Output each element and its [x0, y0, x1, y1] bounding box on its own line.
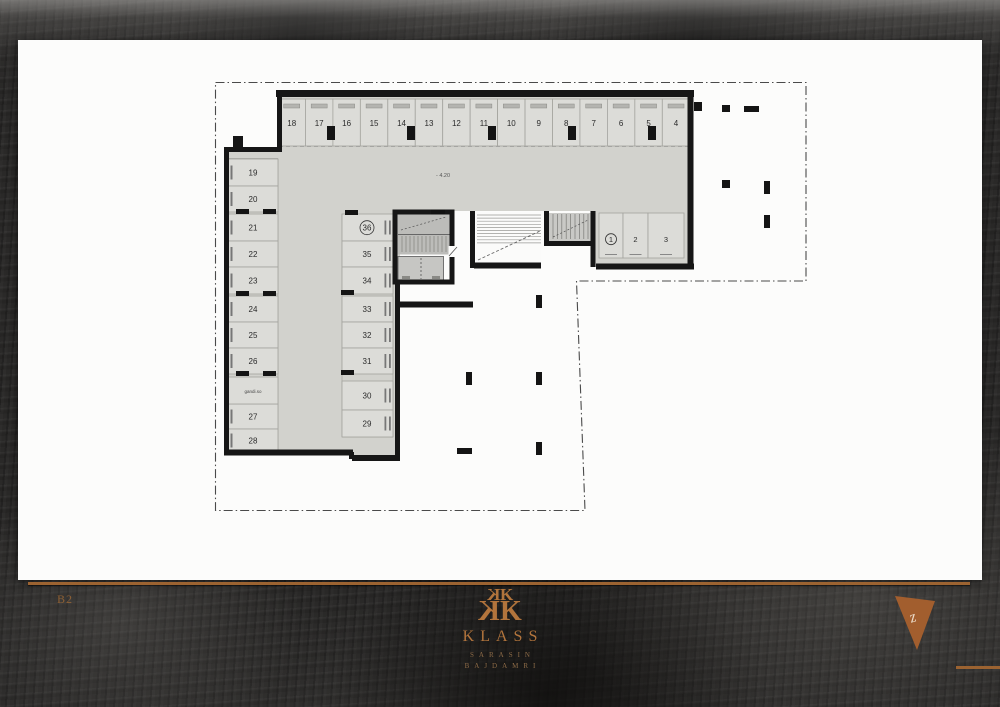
parking-space-number: 10: [507, 119, 516, 128]
wheel-stop: [311, 104, 327, 108]
stall-tick: [389, 274, 391, 288]
wheel-stop: [366, 104, 382, 108]
parking-space-number: 29: [363, 420, 372, 429]
stall-tick: [389, 302, 391, 316]
stair-core: [398, 215, 451, 281]
parking-space-number: 32: [363, 331, 372, 340]
parking-space-number: 3: [664, 235, 668, 244]
parking-space-number: 7: [591, 119, 596, 128]
parking-space-number: 9: [537, 119, 542, 128]
level-badge: B2: [57, 592, 73, 607]
wheel-stop: [531, 104, 547, 108]
strip-label: gandi.so: [244, 389, 262, 394]
stall-tick: [385, 354, 387, 368]
floorplan-card: 1817161514131211109876541920212223242526…: [18, 40, 982, 580]
stall-tick: [385, 389, 387, 403]
parking-space-number: 23: [249, 277, 258, 286]
parking-space-number: 28: [249, 437, 258, 446]
stall-tick: [231, 302, 233, 316]
parking-space-number: 2: [633, 235, 637, 244]
wheel-stop: [641, 104, 657, 108]
north-arrow: z: [888, 592, 942, 656]
brand-name: KLASS: [400, 629, 600, 645]
parking-space-number: 33: [363, 305, 372, 314]
parking-space-number: 19: [249, 169, 258, 178]
parking-space-number: 18: [287, 119, 296, 128]
parking-space-number: 35: [363, 250, 372, 259]
elevation-label: - 4.20: [436, 173, 450, 179]
wheel-stop: [558, 104, 574, 108]
wheel-stop: [503, 104, 519, 108]
wheel-stop: [421, 104, 437, 108]
parking-space-number: 13: [425, 119, 434, 128]
stall-tick: [231, 434, 233, 448]
parking-space-number: 25: [249, 331, 258, 340]
stall-tick: [385, 328, 387, 342]
parking-space-number: 31: [363, 357, 372, 366]
wheel-stop: [284, 104, 300, 108]
parking-space-number: 17: [315, 119, 324, 128]
stall-tick: [231, 247, 233, 261]
stall-tick: [385, 274, 387, 288]
copper-edge-line: [956, 666, 1000, 669]
wheel-stop: [476, 104, 492, 108]
parking-space-number: 12: [452, 119, 461, 128]
stall-tick: [231, 328, 233, 342]
building-floor-areas: [224, 96, 690, 455]
stall-tick: [385, 302, 387, 316]
wall-pilaster: [233, 136, 243, 148]
wheel-stop: [339, 104, 355, 108]
wheel-stop: [394, 104, 410, 108]
wheel-stop: [613, 104, 629, 108]
wheel-stop: [668, 104, 684, 108]
parking-space-number: 11: [480, 119, 489, 128]
stall-tick: [231, 410, 233, 424]
stall-tick: [231, 166, 233, 180]
parking-space-number: 15: [370, 119, 379, 128]
parking-space-number: 24: [249, 305, 258, 314]
parking-space-number: 20: [249, 195, 258, 204]
parking-space-number: 27: [249, 413, 258, 422]
floorplan-drawing: 1817161514131211109876541920212223242526…: [18, 40, 982, 580]
parking-space-number: 21: [249, 224, 258, 233]
stair-secondary: [549, 213, 591, 242]
stall-tick: [389, 417, 391, 431]
parking-space-number: 4: [674, 119, 679, 128]
stall-tick: [231, 274, 233, 288]
stall-tick: [385, 221, 387, 235]
wheel-stop: [586, 104, 602, 108]
parking-space-number: 36: [363, 224, 372, 233]
parking-space-number: 26: [249, 357, 258, 366]
stall-tick: [385, 247, 387, 261]
wheel-stop: [448, 104, 464, 108]
parking-space-number: 6: [619, 119, 624, 128]
stall-tick: [231, 221, 233, 235]
stall-tick: [385, 417, 387, 431]
brand-logo: KK KK KLASS SARASIN BAJDAMRI: [400, 586, 600, 670]
stall-tick: [389, 247, 391, 261]
stall-tick: [231, 354, 233, 368]
stall-tick: [389, 328, 391, 342]
stall-tick: [231, 192, 233, 206]
parking-space-number: 1: [609, 235, 613, 244]
parking-space-number: 30: [363, 392, 372, 401]
stall-tick: [389, 389, 391, 403]
parking-space-number: 16: [342, 119, 351, 128]
parking-space-number: 22: [249, 250, 258, 259]
stair-core-cap: [431, 210, 445, 215]
parking-space-number: 34: [363, 277, 372, 286]
stall-tick: [389, 221, 391, 235]
brand-subtitle-2: BAJDAMRI: [400, 663, 600, 670]
brand-subtitle-1: SARASIN: [400, 652, 600, 659]
stall-tick: [389, 354, 391, 368]
vehicle-ramp: [475, 212, 541, 264]
parking-space-number: 14: [397, 119, 406, 128]
